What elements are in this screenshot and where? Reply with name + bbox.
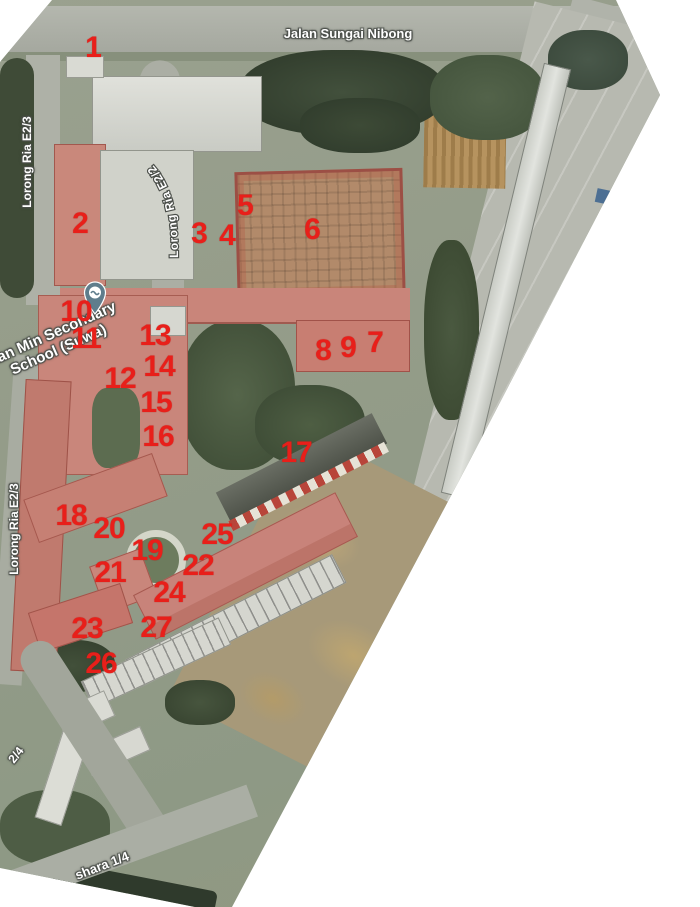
map-marker-1: 1: [85, 33, 101, 63]
map-marker-25: 25: [201, 520, 232, 550]
map-marker-10: 10: [60, 297, 91, 327]
map-marker-21: 21: [94, 558, 125, 588]
map-marker-9: 9: [340, 333, 356, 363]
map-marker-24: 24: [153, 578, 184, 608]
map-marker-16: 16: [142, 422, 173, 452]
map-marker-15: 15: [140, 388, 171, 418]
map-marker-14: 14: [143, 352, 174, 382]
campus-satellite-map[interactable]: Jalan Sungai Nibong Lorong Ria E2/3 Loro…: [0, 0, 700, 907]
map-marker-20: 20: [93, 514, 124, 544]
map-marker-18: 18: [55, 501, 86, 531]
map-marker-11: 11: [71, 324, 101, 354]
map-marker-4: 4: [219, 221, 235, 251]
map-marker-22: 22: [182, 551, 213, 581]
map-marker-19: 19: [131, 536, 162, 566]
map-marker-7: 7: [367, 328, 383, 358]
map-marker-6: 6: [304, 215, 320, 245]
map-marker-2: 2: [72, 209, 88, 239]
map-marker-26: 26: [85, 649, 116, 679]
map-marker-17: 17: [280, 438, 311, 468]
markers-layer: 1234567891011121314151617181920212223242…: [0, 0, 700, 907]
map-marker-5: 5: [237, 191, 253, 221]
map-marker-3: 3: [191, 219, 207, 249]
map-marker-13: 13: [139, 321, 170, 351]
map-marker-12: 12: [104, 364, 135, 394]
map-marker-27: 27: [140, 613, 171, 643]
map-marker-8: 8: [315, 336, 331, 366]
map-marker-23: 23: [71, 614, 102, 644]
satellite-imagery[interactable]: Jalan Sungai Nibong Lorong Ria E2/3 Loro…: [0, 0, 700, 907]
